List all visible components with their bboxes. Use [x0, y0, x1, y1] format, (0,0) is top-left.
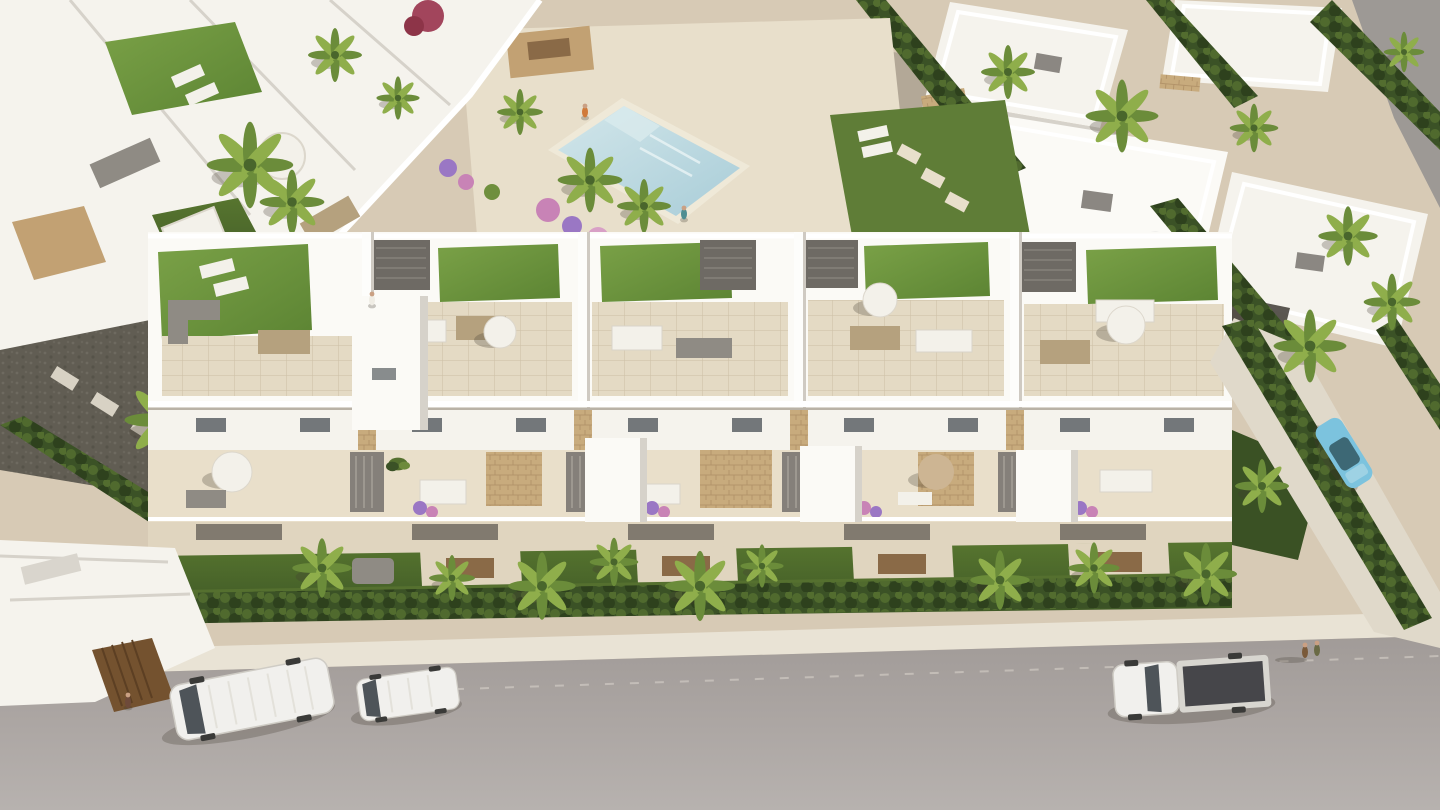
stone-pillar	[1006, 410, 1024, 450]
lounge-sofa	[676, 338, 732, 358]
dining-table	[258, 330, 310, 354]
palm-tree	[497, 89, 543, 135]
palm-tree	[1086, 80, 1159, 153]
palm-tree	[1274, 310, 1347, 383]
architectural-rendering	[0, 0, 1440, 810]
glazed-door	[412, 524, 498, 540]
wheel	[1232, 706, 1246, 713]
palm-tree	[508, 552, 576, 620]
sun-lounger	[898, 492, 932, 505]
main-townhouse-block	[148, 232, 1237, 624]
window	[1060, 418, 1090, 432]
wheel	[1128, 714, 1142, 721]
wheel	[1228, 652, 1242, 659]
roof-terrace-unit	[1020, 242, 1224, 396]
window	[628, 418, 658, 432]
stone-clad-wall	[700, 450, 772, 508]
dining-table	[612, 326, 662, 350]
palm-tree	[1175, 543, 1237, 605]
palm-tree	[981, 45, 1035, 99]
stone-pillar	[790, 410, 808, 450]
truck-bed	[1183, 661, 1266, 706]
palm-tree	[260, 170, 325, 235]
glazed-door	[196, 524, 282, 540]
rendering-canvas	[0, 0, 1440, 810]
palm-tree	[590, 538, 639, 587]
window	[372, 368, 396, 380]
lounge-sofa	[1100, 470, 1152, 492]
dining-table	[1040, 340, 1090, 364]
window	[948, 418, 978, 432]
lounge-sofa	[186, 490, 226, 508]
stone-clad-wall	[486, 452, 542, 506]
wheel	[1124, 660, 1138, 667]
roof-terrace-unit	[804, 240, 1004, 396]
palm-tree	[970, 550, 1029, 609]
palm-tree	[376, 76, 419, 119]
palm-tree	[558, 148, 623, 213]
glazed-door	[628, 524, 714, 540]
lounge-sofa	[916, 330, 972, 352]
palm-tree	[308, 28, 362, 82]
palm-tree	[429, 555, 475, 601]
dining-table	[850, 326, 900, 350]
lounge-sofa	[168, 318, 188, 344]
palm-tree	[1235, 459, 1289, 513]
lounge-sofa	[168, 300, 220, 320]
window	[516, 418, 546, 432]
palm-tree	[292, 538, 351, 597]
window	[844, 418, 874, 432]
grey-daybed	[352, 558, 394, 584]
day-bed	[420, 480, 466, 504]
palm-tree	[1364, 274, 1421, 331]
window	[300, 418, 330, 432]
palm-tree	[617, 179, 671, 233]
patio-dining-table	[878, 554, 926, 574]
upper-facade	[148, 410, 1232, 450]
palm-tree	[1318, 206, 1377, 265]
palm-tree	[1068, 542, 1119, 593]
window	[732, 418, 762, 432]
glazed-door	[844, 524, 930, 540]
palm-tree	[740, 544, 783, 587]
glazed-door	[1060, 524, 1146, 540]
palm-tree	[665, 551, 735, 621]
palm-tree	[1384, 32, 1425, 73]
window	[196, 418, 226, 432]
palm-tree	[1230, 104, 1279, 153]
window	[1164, 418, 1194, 432]
